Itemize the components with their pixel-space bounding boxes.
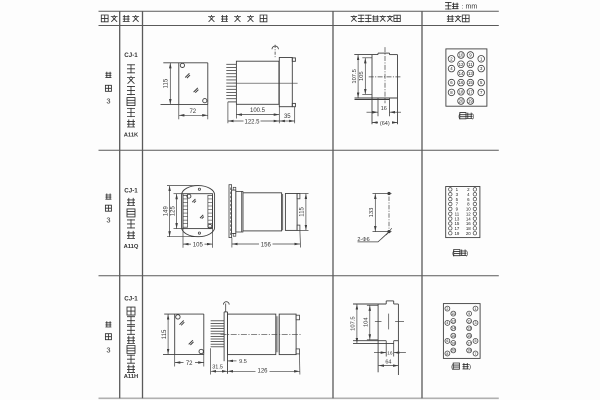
svg-text:107.5: 107.5 [352,69,358,84]
svg-text:72: 72 [186,361,193,367]
svg-text:64: 64 [385,360,391,366]
svg-text:20: 20 [459,99,464,104]
svg-text:15: 15 [468,80,473,85]
svg-text:107.5: 107.5 [351,316,357,331]
svg-text:3: 3 [106,97,110,106]
svg-text:20: 20 [466,231,471,236]
svg-text:mm: mm [466,4,478,11]
svg-text:16: 16 [381,106,387,112]
svg-text:20: 20 [451,349,455,353]
svg-text:9: 9 [468,312,470,316]
svg-text:105: 105 [359,71,365,81]
svg-text:A11K: A11K [124,133,139,139]
svg-text:16: 16 [387,350,393,356]
svg-text:104: 104 [364,317,370,327]
svg-text:3: 3 [475,321,477,325]
svg-text:CJ-1: CJ-1 [124,188,138,195]
svg-text:3: 3 [106,215,110,224]
svg-text:156: 156 [261,242,272,248]
svg-text:19: 19 [468,99,473,104]
svg-text:2: 2 [446,307,448,311]
svg-text:A11Q: A11Q [124,244,139,250]
svg-text:14: 14 [451,327,455,331]
svg-text:16: 16 [459,80,464,85]
svg-text:15: 15 [467,334,471,338]
svg-text:125: 125 [170,206,176,217]
svg-text:1: 1 [475,307,477,311]
svg-text:17: 17 [468,89,473,94]
svg-text:16: 16 [451,334,455,338]
svg-text:122.5: 122.5 [244,119,260,125]
svg-text:133: 133 [369,208,375,218]
svg-text:105: 105 [193,242,204,248]
svg-text:2-Φ6: 2-Φ6 [357,237,369,243]
svg-text:8: 8 [446,352,448,356]
svg-text:A11H: A11H [124,374,139,380]
svg-text:(64): (64) [380,121,390,127]
svg-text:3: 3 [106,345,110,354]
svg-text:31.5: 31.5 [212,365,223,371]
svg-text:9.5: 9.5 [239,359,247,365]
svg-text:13: 13 [468,71,473,76]
svg-text:149: 149 [163,206,169,217]
svg-text:10: 10 [451,312,455,316]
svg-text:17: 17 [467,341,471,345]
svg-text:12: 12 [451,319,455,323]
svg-text:4: 4 [446,321,448,325]
svg-text:14: 14 [459,71,464,76]
svg-text::: : [462,4,464,11]
svg-text:13: 13 [467,327,471,331]
svg-text:72: 72 [189,109,196,115]
svg-text:11: 11 [468,62,473,67]
svg-text:19: 19 [467,349,471,353]
svg-text:18: 18 [451,341,455,345]
svg-text:35: 35 [284,114,291,120]
svg-text:): ) [469,363,471,370]
svg-text:6: 6 [446,339,448,343]
svg-text:115: 115 [300,206,306,216]
svg-text:18: 18 [459,89,464,94]
svg-text:12: 12 [459,62,464,67]
svg-text:): ) [472,113,474,120]
svg-text:115: 115 [162,329,168,339]
svg-text:CJ-1: CJ-1 [124,52,138,59]
svg-text:100.5: 100.5 [250,108,266,114]
svg-text:7: 7 [475,352,477,356]
svg-text:19: 19 [454,231,459,236]
svg-text:11: 11 [467,319,471,323]
svg-text:): ) [466,250,468,257]
svg-text:126: 126 [257,368,268,374]
svg-text:10: 10 [459,53,464,58]
svg-text:CJ-1: CJ-1 [124,296,138,303]
svg-text:5: 5 [475,339,477,343]
svg-text:115: 115 [163,78,169,88]
